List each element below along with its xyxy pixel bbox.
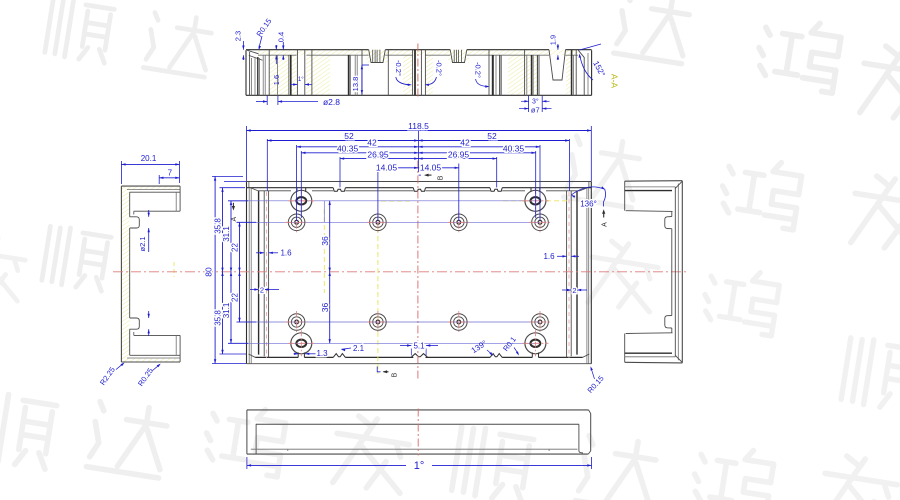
svg-text:A: A [602,222,609,227]
svg-text:1.9: 1.9 [548,35,557,45]
svg-text:5.1: 5.1 [413,341,425,350]
svg-text:118.5: 118.5 [408,121,429,131]
svg-text:26.95: 26.95 [448,149,470,159]
svg-text:52: 52 [487,131,497,141]
svg-text:2.3: 2.3 [233,31,242,41]
svg-text:2: 2 [572,286,576,295]
svg-text:7: 7 [168,168,173,177]
svg-text:-0.2°: -0.2° [434,60,443,76]
svg-text:3°: 3° [532,98,539,106]
svg-text:31.1: 31.1 [222,302,231,318]
svg-text:1.6: 1.6 [280,249,292,258]
svg-text:31.1: 31.1 [222,226,231,242]
svg-text:26.95: 26.95 [367,149,389,159]
svg-text:36: 36 [320,236,330,246]
svg-text:1.6: 1.6 [543,252,555,261]
svg-text:-0.2°: -0.2° [474,62,483,78]
svg-text:14.05: 14.05 [376,162,398,172]
svg-text:2.1: 2.1 [353,344,365,353]
svg-text:B: B [392,372,399,377]
svg-text:ø2.1: ø2.1 [138,236,147,251]
svg-text:1.6: 1.6 [272,75,281,85]
svg-text:136°: 136° [580,200,597,209]
svg-text:ø7: ø7 [531,106,540,115]
svg-text:1.3: 1.3 [316,349,328,358]
svg-text:14.05: 14.05 [420,162,442,172]
svg-text:ø2.8: ø2.8 [323,97,340,107]
svg-text:22: 22 [230,293,239,302]
svg-text:80: 80 [204,267,214,277]
svg-text:40.35: 40.35 [503,144,525,154]
svg-text:A: A [231,217,238,222]
svg-text:1°: 1° [298,77,304,83]
svg-text:13.8: 13.8 [351,77,360,92]
svg-text:A-A: A-A [610,74,620,89]
svg-text:42: 42 [460,138,470,148]
svg-text:22: 22 [230,243,239,252]
svg-text:2: 2 [260,285,264,294]
svg-text:52: 52 [344,131,354,141]
svg-text:36: 36 [320,303,330,313]
svg-text:42: 42 [367,138,377,148]
svg-text:-0.2°: -0.2° [394,60,403,76]
svg-text:40.35: 40.35 [337,144,359,154]
svg-text:B: B [437,175,444,180]
svg-text:1°: 1° [414,460,425,472]
svg-text:0.4: 0.4 [276,32,285,42]
svg-text:20.1: 20.1 [141,154,157,163]
